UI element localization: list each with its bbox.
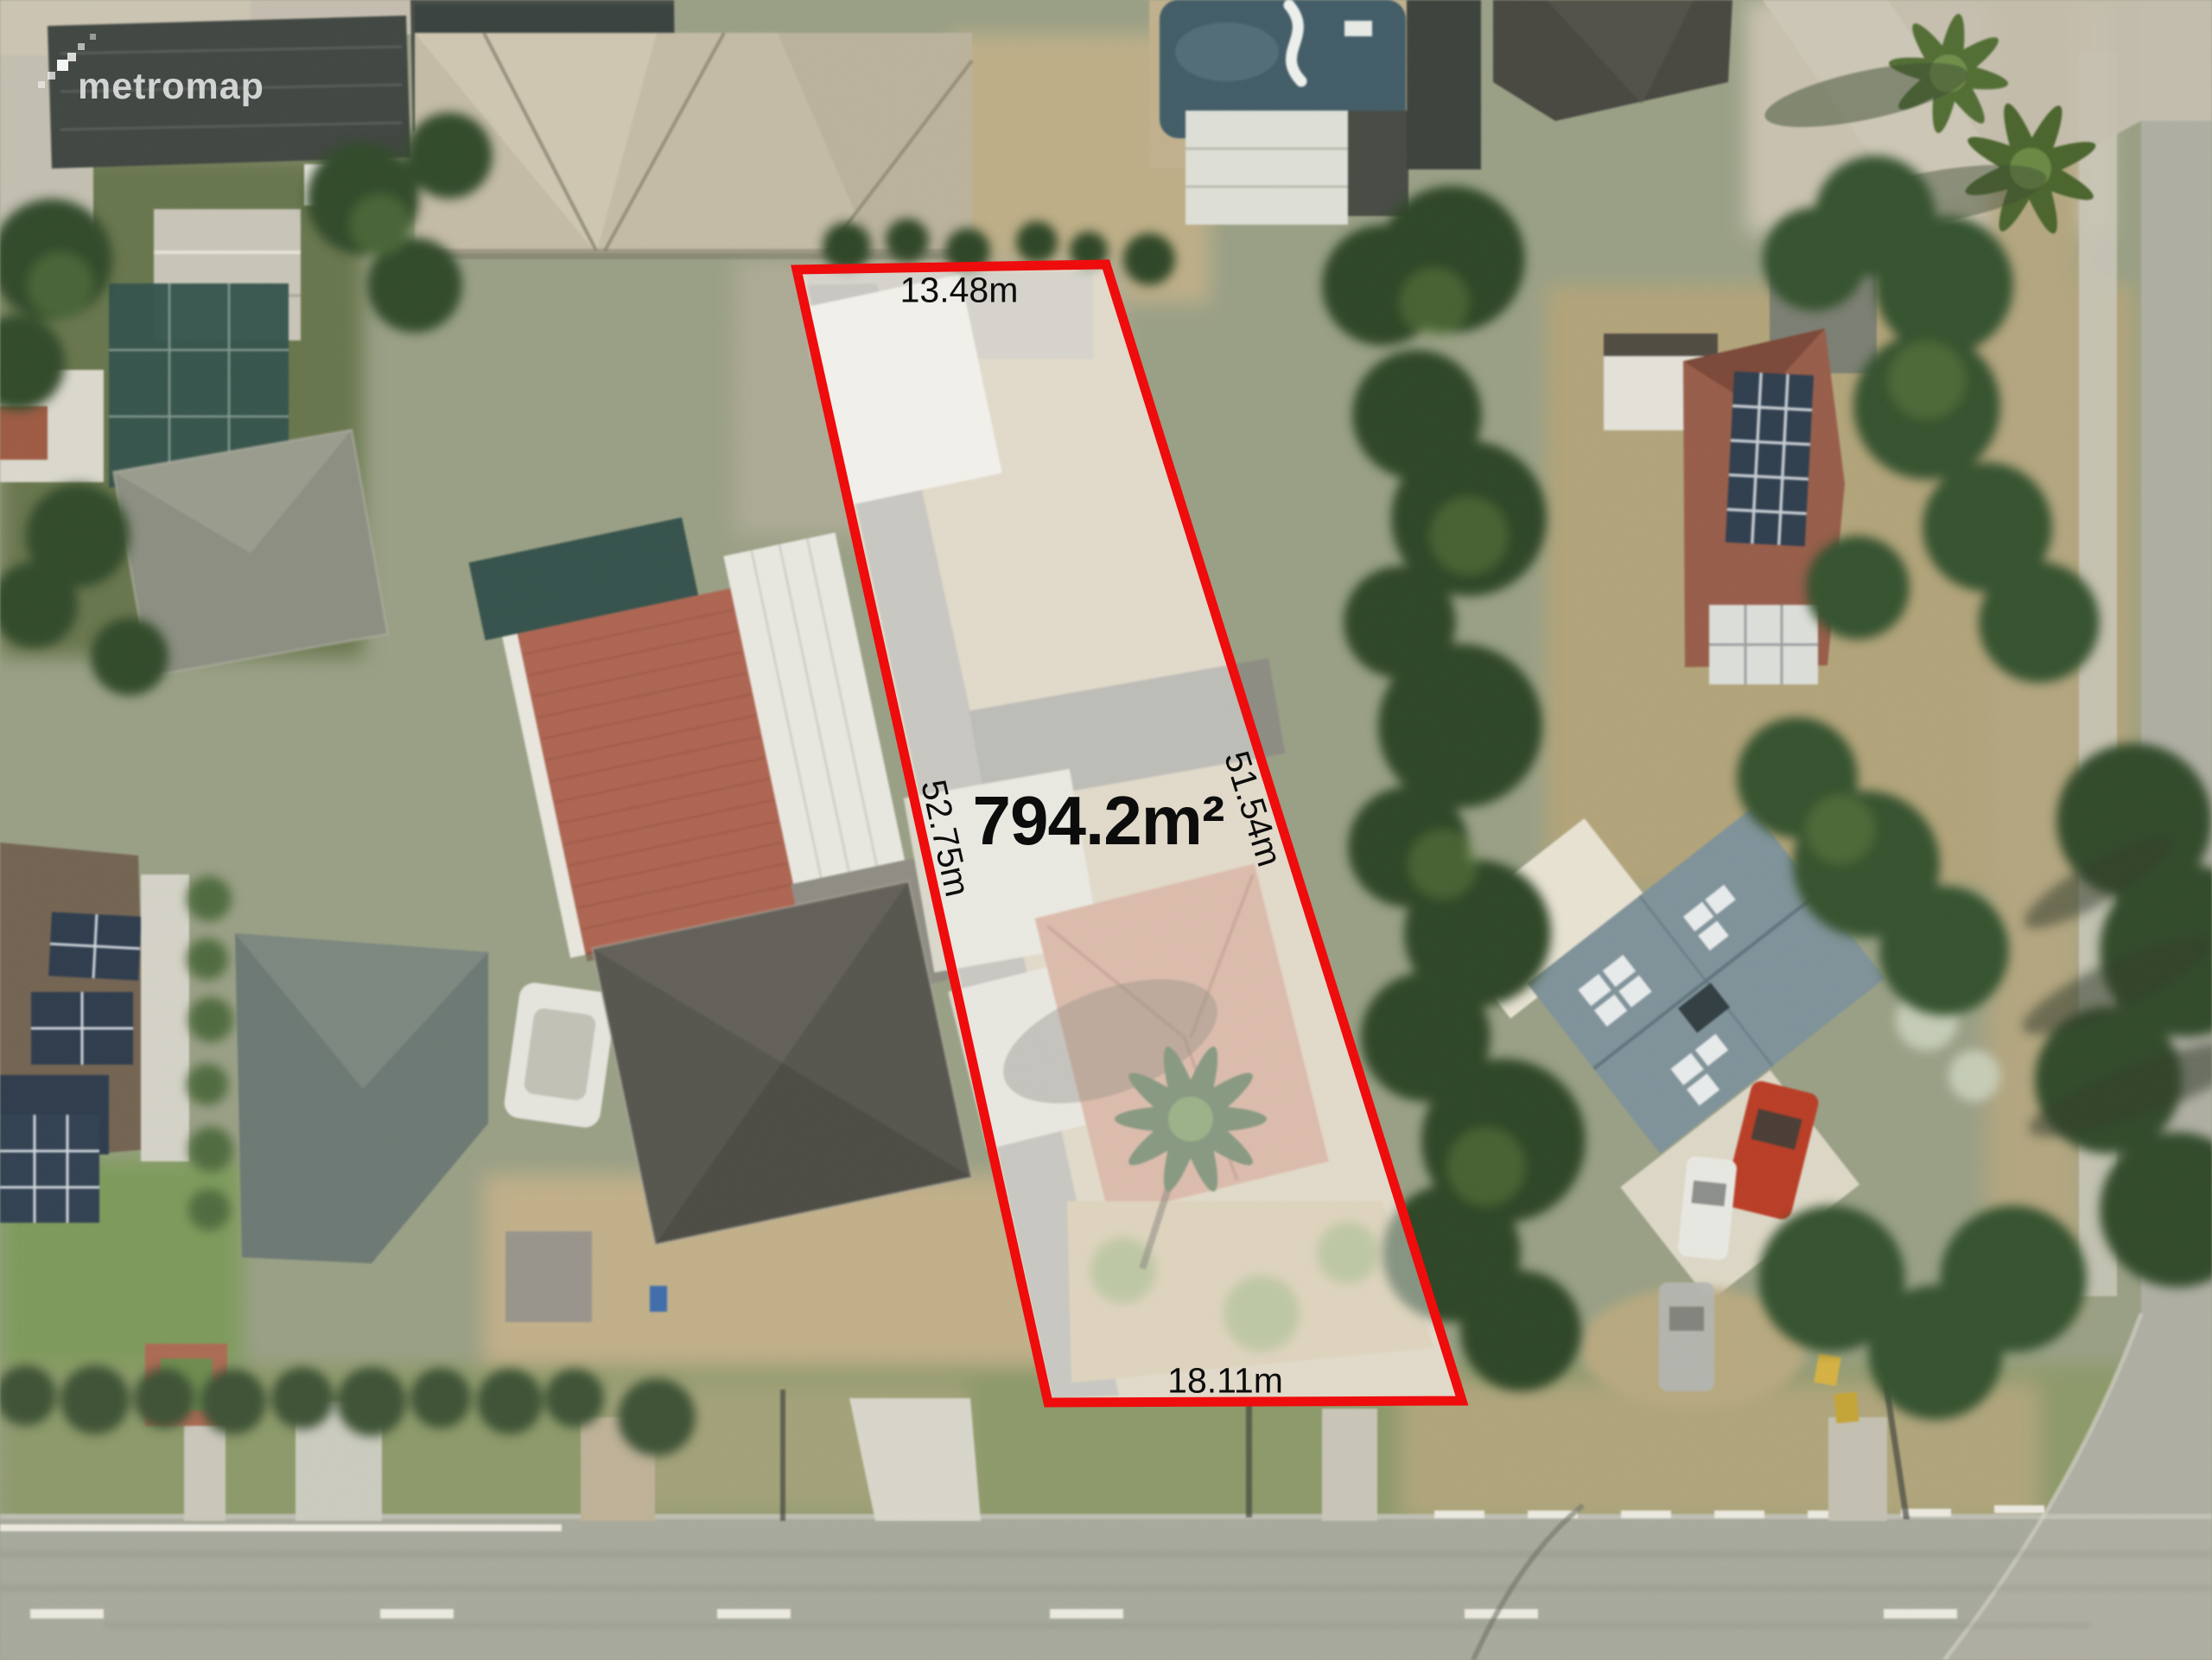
metromap-logo-text: metromap	[78, 66, 264, 108]
metromap-watermark: metromap	[38, 31, 271, 104]
area-label: 794.2m²	[973, 786, 1224, 855]
measurement-bottom: 18.11m	[1167, 1364, 1283, 1399]
measurement-top: 13.48m	[900, 273, 1019, 308]
metromap-aerial-view: 13.48m 52.75m 51.54m 18.11m 794.2m² metr…	[0, 0, 2212, 1660]
